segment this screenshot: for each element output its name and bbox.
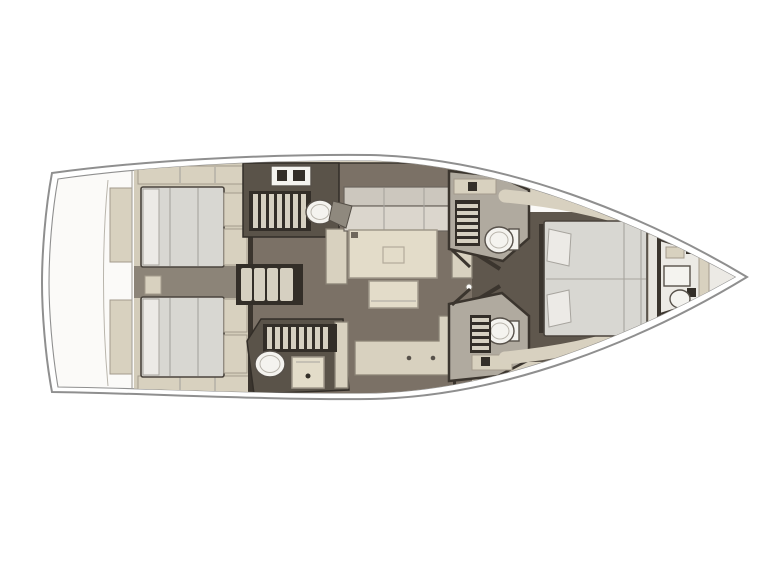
movable-bench <box>369 281 418 308</box>
toilet <box>485 227 513 253</box>
pillow <box>547 290 571 327</box>
forward-bulkhead <box>657 230 661 326</box>
faucet <box>468 182 477 191</box>
transom-locker-starboard <box>110 300 132 374</box>
settee-backrest <box>344 187 464 206</box>
dining-table <box>349 230 437 278</box>
transom-locker-port <box>110 188 132 262</box>
settee-seat <box>344 206 464 231</box>
sideboard-handle <box>407 356 412 361</box>
wardrobe-shelf <box>138 166 250 184</box>
oven-knob <box>306 374 311 379</box>
foot-locker <box>224 335 247 373</box>
burner <box>277 170 287 181</box>
bow-compartment <box>661 232 745 322</box>
table-corner-fitting <box>351 232 358 238</box>
pillows <box>143 299 159 375</box>
aft-cabin-starboard <box>138 297 250 394</box>
companionway <box>236 264 303 305</box>
yacht-floor-plan <box>0 0 768 576</box>
seat <box>664 266 690 286</box>
faucet <box>481 357 490 366</box>
sideboard-handle <box>431 356 436 361</box>
side-seat-port <box>326 229 347 284</box>
pillow <box>547 229 571 266</box>
step <box>254 268 265 301</box>
step <box>267 268 278 301</box>
galley-starboard <box>247 319 349 394</box>
aft-cabin-port <box>138 166 250 267</box>
burner <box>293 170 305 181</box>
floor-plan-page <box>0 0 768 576</box>
passage-locker <box>145 276 161 294</box>
step <box>280 268 293 301</box>
step <box>241 268 252 301</box>
pillows <box>143 189 159 265</box>
